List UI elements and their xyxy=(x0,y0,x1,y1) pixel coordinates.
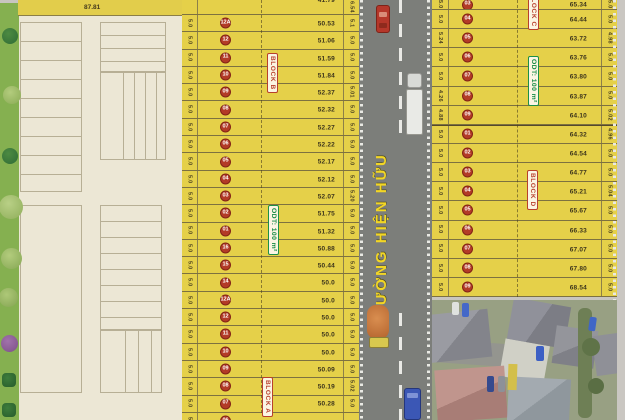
plot-width-right xyxy=(343,413,359,420)
plot-strip: 02 64.54 xyxy=(449,144,601,162)
plot-width-right: 5.0 xyxy=(343,223,359,239)
lot-number-badge: 10 xyxy=(220,70,231,81)
plot-strip: 12 50.0 xyxy=(198,309,343,325)
plot-length-label: 66.33 xyxy=(570,227,587,234)
plot-length-label: 51.75 xyxy=(318,211,335,218)
plot-width-left: 5.0 xyxy=(182,240,198,256)
plot-strip: 06 63.76 xyxy=(449,48,601,66)
road-name-label: ĐƯỜNG HIỆN HỮU xyxy=(373,138,390,318)
plot-width-right: 5.0 xyxy=(343,344,359,360)
plot-width-right: 5.0 xyxy=(343,50,359,66)
plot-width-right: 5.0 xyxy=(343,119,359,135)
plot-width-right: 5.0 xyxy=(343,274,359,290)
plot-length-label: 50.19 xyxy=(318,384,335,391)
plot-width-left: 5.0 xyxy=(182,274,198,290)
road-edge-line xyxy=(360,0,363,420)
top-boundary-length: 87.81 xyxy=(84,4,100,11)
lot-number-badge: 09 xyxy=(220,87,231,98)
lot-number-badge: 04 xyxy=(220,173,231,184)
block-c-label: BLOCK C xyxy=(528,0,539,30)
lot-number-badge: 06 xyxy=(220,139,231,150)
plot-length-label: 50.44 xyxy=(318,263,335,270)
top-boundary-bar: 87.81 xyxy=(18,0,182,16)
plot-length-label: 67.07 xyxy=(570,246,587,253)
lot-number-badge: 01 xyxy=(220,225,231,236)
cadastral-block xyxy=(20,22,82,192)
plot-width-left: 5.0 xyxy=(182,84,198,100)
plot-strip: 41.79 xyxy=(198,0,343,14)
road-center-dash xyxy=(399,313,402,420)
tree-icon xyxy=(2,28,18,44)
bush-icon xyxy=(2,403,16,417)
plot-length-label: 52.22 xyxy=(318,142,335,149)
lot-number-badge: 08 xyxy=(462,262,473,273)
plot-width-left: 5.0 xyxy=(182,153,198,169)
plot-width-left: 5.0 xyxy=(432,48,449,66)
plot-width-left: 5.0 xyxy=(432,126,449,143)
plot-row: 4.88 09 64.10 5.02 xyxy=(432,106,617,125)
lot-number-badge: 07 xyxy=(220,398,231,409)
plot-width-right: 5.0 xyxy=(343,153,359,169)
plot-width-left: 5.0 xyxy=(182,171,198,187)
lot-number-badge: 14 xyxy=(220,277,231,288)
plot-strip: 15 50.44 xyxy=(198,257,343,273)
plot-width-left: 5.0 xyxy=(432,163,449,181)
plot-row: 41.79 6.54 xyxy=(182,0,359,15)
plot-width-right: 5.0 xyxy=(343,32,359,48)
plot-width-left: 5.0 xyxy=(432,240,449,258)
plot-width-left: 5.0 xyxy=(182,32,198,48)
plot-strip: 12A 50.0 xyxy=(198,292,343,308)
plot-row: 5.0 03 52.07 5.20 xyxy=(182,188,359,205)
plot-width-right: 5.0 xyxy=(343,240,359,256)
lot-number-badge: 09 xyxy=(220,364,231,375)
plot-width-right: 5.02 xyxy=(343,378,359,394)
plot-length-label: 65.34 xyxy=(570,1,587,8)
plot-row: 5.0 04 52.12 5.0 xyxy=(182,171,359,188)
plot-width-left: 5.0 xyxy=(432,144,449,162)
plot-width-right: 5.1 xyxy=(343,15,359,31)
plot-width-left: 5.0 xyxy=(182,344,198,360)
plot-strip: 04 64.44 xyxy=(449,10,601,28)
plot-length-label: 50.53 xyxy=(318,20,335,27)
subdivision-map: 87.81 41.79 6.54 5.0 12A 50.53 5.1 5.0 1… xyxy=(0,0,625,420)
plot-strip: 11 50.0 xyxy=(198,326,343,342)
lot-number-badge: 08 xyxy=(220,104,231,115)
plot-row: 5.0 12A 50.53 5.1 xyxy=(182,15,359,32)
lot-number-badge: 03 xyxy=(462,167,473,178)
cadastral-block xyxy=(20,205,82,393)
lot-number-badge: 03 xyxy=(220,191,231,202)
cadastral-block xyxy=(113,72,166,160)
plot-row: 5.0 04 64.44 5.0 xyxy=(432,10,617,29)
plot-row: 5.0 04 65.21 5.04 xyxy=(432,182,617,201)
plot-strip: 07 63.80 xyxy=(449,67,601,85)
plot-row: 5.0 05 52.17 5.0 xyxy=(182,153,359,170)
plot-width-right: 5.0 xyxy=(343,257,359,273)
road-edge-line xyxy=(427,0,430,420)
plot-width-right: 5.0 xyxy=(343,396,359,412)
plot-row: 5.0 03 64.77 5.0 xyxy=(432,163,617,182)
plot-row: 5.0 06 52.22 5.0 xyxy=(182,136,359,153)
plot-strip: 06 66.33 xyxy=(449,221,601,239)
tree-icon xyxy=(2,148,18,164)
lot-number-badge: 03 xyxy=(462,0,473,9)
plot-row: 5.0 08 52.32 5.0 xyxy=(182,101,359,118)
boundary-dotted-line xyxy=(613,0,616,300)
plot-row: 5.0 11 50.0 5.0 xyxy=(182,326,359,343)
photo-car xyxy=(588,317,597,332)
plot-row: 5.0 06 63.76 5.0 xyxy=(432,48,617,67)
plot-width-left: 4.26 xyxy=(432,87,449,105)
plot-row: 5.0 09 50.09 5.0 xyxy=(182,361,359,378)
photo-tree xyxy=(588,378,604,394)
paper-edge xyxy=(617,0,625,420)
white-truck-icon xyxy=(406,73,423,135)
depth-divider-right xyxy=(517,0,518,297)
tree-icon xyxy=(3,86,21,104)
cadastral-block xyxy=(100,205,162,330)
plot-strip: 05 52.17 xyxy=(198,153,343,169)
lot-number-badge: 09 xyxy=(462,282,473,293)
car-windshield xyxy=(379,12,387,17)
purple-tree-icon xyxy=(1,335,18,352)
plot-width-left: 5.0 xyxy=(182,136,198,152)
truck-cab xyxy=(407,73,422,88)
photo-pink-roof xyxy=(434,366,507,420)
block-a-label: BLOCK A xyxy=(262,377,273,417)
lot-number-badge: 12A xyxy=(220,18,231,29)
tree-icon xyxy=(0,288,18,307)
plot-length-label: 50.0 xyxy=(322,297,335,304)
plot-width-left: 5.0 xyxy=(432,201,449,219)
plot-length-label: 51.06 xyxy=(318,38,335,45)
plot-strip: 03 64.77 xyxy=(449,163,601,181)
plot-width-right: 5.0 xyxy=(343,361,359,377)
lot-number-badge: 08 xyxy=(220,381,231,392)
plot-width-left: 5.0 xyxy=(182,50,198,66)
plot-row: 4.26 08 63.87 5.0 xyxy=(432,87,617,106)
plot-length-label: 50.88 xyxy=(318,245,335,252)
plot-width-left: 4.88 xyxy=(432,106,449,124)
photo-car xyxy=(452,302,459,315)
photo-car xyxy=(487,376,494,392)
plot-width-left: 5.0 xyxy=(182,396,198,412)
plot-width-left: 5.0 xyxy=(182,188,198,204)
plot-width-left: 5.24 xyxy=(432,29,449,47)
photo-roof xyxy=(432,309,492,363)
plot-strip: 03 65.34 xyxy=(449,0,601,9)
plot-width-left: 5.0 xyxy=(432,182,449,200)
plot-length-label: 51.59 xyxy=(318,55,335,62)
plot-width-left: 5.0 xyxy=(182,205,198,221)
plot-width-left xyxy=(182,0,198,14)
tree-icon xyxy=(0,195,23,219)
plot-row: 5.0 12A 50.0 5.0 xyxy=(182,292,359,309)
plot-row: 5.24 05 63.72 4.98 xyxy=(432,29,617,48)
lot-number-badge: 02 xyxy=(220,208,231,219)
block-b-label: BLOCK B xyxy=(267,53,278,93)
lot-number-badge: 07 xyxy=(462,243,473,254)
plot-strip: 12A 50.53 xyxy=(198,15,343,31)
plot-length-label: 41.79 xyxy=(318,0,335,4)
lot-number-badge: 04 xyxy=(462,14,473,25)
plot-length-label: 52.32 xyxy=(318,107,335,114)
lot-number-badge: 12 xyxy=(220,35,231,46)
plot-row: 5.0 07 63.80 5.0 xyxy=(432,67,617,86)
plot-rows-right: 5.0 03 65.34 5.0 5.0 04 64.44 5.0 5.24 0… xyxy=(432,0,617,297)
car-rear-window xyxy=(379,23,387,28)
odt-left-label: ODT: 100 m² xyxy=(268,205,279,255)
plot-width-left: 5.0 xyxy=(182,67,198,83)
plot-length-label: 64.32 xyxy=(570,132,587,139)
plot-row: 5.0 05 65.67 5.0 xyxy=(432,201,617,220)
lot-number-badge: 07 xyxy=(220,121,231,132)
plot-length-label: 52.12 xyxy=(318,176,335,183)
plot-width-left: 5.0 xyxy=(182,15,198,31)
plot-width-left: 5.0 xyxy=(182,361,198,377)
plot-length-label: 65.67 xyxy=(570,208,587,215)
plot-row: 5.0 15 50.44 5.0 xyxy=(182,257,359,274)
plot-strip: 10 50.0 xyxy=(198,344,343,360)
plot-strip: 07 52.27 xyxy=(198,119,343,135)
plot-row: 5.0 12 50.0 5.0 xyxy=(182,309,359,326)
plot-length-label: 68.54 xyxy=(570,284,587,291)
plot-row: 5.0 01 64.32 4.96 xyxy=(432,125,617,144)
photo-car xyxy=(498,376,505,392)
plot-strip: 08 52.32 xyxy=(198,101,343,117)
plot-row: 5.0 08 67.80 5.0 xyxy=(432,259,617,278)
tree-icon xyxy=(1,248,22,269)
mixer-base xyxy=(369,337,389,348)
plot-strip: 05 63.72 xyxy=(449,29,601,47)
plot-width-left: 5.0 xyxy=(432,221,449,239)
lot-number-badge: 08 xyxy=(462,90,473,101)
plot-length-label: 64.54 xyxy=(570,150,587,157)
road-center-dash xyxy=(399,0,402,138)
lot-number-badge: 09 xyxy=(462,109,473,120)
lot-number-badge: 11 xyxy=(220,52,231,63)
plot-width-left: 5.0 xyxy=(182,101,198,117)
plot-strip: 09 50.09 xyxy=(198,361,343,377)
plot-row: 5.0 12 51.06 5.0 xyxy=(182,32,359,49)
lot-number-badge: 15 xyxy=(220,260,231,271)
plot-width-left: 5.0 xyxy=(432,67,449,85)
plot-length-label: 50.0 xyxy=(322,349,335,356)
depth-divider-left xyxy=(261,0,262,413)
lot-number-badge: 12A xyxy=(220,294,231,305)
plot-length-label: 63.87 xyxy=(570,93,587,100)
plot-width-right: 5.0 xyxy=(343,326,359,342)
plot-length-label: 51.32 xyxy=(318,228,335,235)
plot-strip: 14 50.0 xyxy=(198,274,343,290)
truck-windshield xyxy=(407,393,418,398)
plot-width-left: 5.0 xyxy=(182,413,198,420)
photo-tree xyxy=(582,338,600,356)
plot-width-left: 5.0 xyxy=(182,119,198,135)
plot-length-label: 63.72 xyxy=(570,36,587,43)
plot-width-left: 5.0 xyxy=(432,10,449,28)
greenery-strip xyxy=(0,3,19,420)
plot-strip: 04 65.21 xyxy=(449,182,601,200)
plot-row: 5.0 06 66.33 5.0 xyxy=(432,221,617,240)
plot-row: 5.0 07 67.07 5.0 xyxy=(432,240,617,259)
plot-width-right: 5.0 xyxy=(343,292,359,308)
plot-width-right: 6.54 xyxy=(343,0,359,14)
plot-strip: 01 64.32 xyxy=(449,126,601,143)
plot-width-right: 5.0 xyxy=(343,101,359,117)
aerial-photo xyxy=(432,300,617,420)
cadastral-block xyxy=(100,22,166,72)
photo-car xyxy=(536,346,544,361)
plot-width-right: 5.0 xyxy=(343,205,359,221)
lot-number-badge: 05 xyxy=(462,33,473,44)
photo-car xyxy=(462,303,469,317)
plot-strip: 12 51.06 xyxy=(198,32,343,48)
plot-strip: 09 64.10 xyxy=(449,106,601,124)
lot-number-badge: 16 xyxy=(220,243,231,254)
plot-length-label: 64.10 xyxy=(570,112,587,119)
plot-width-left: 5.0 xyxy=(182,378,198,394)
plot-width-left: 5.0 xyxy=(432,0,449,9)
lot-number-badge: 12 xyxy=(220,312,231,323)
plot-strip: 09 68.54 xyxy=(449,278,601,296)
plot-length-label: 50.0 xyxy=(322,280,335,287)
block-d-label: BLOCK D xyxy=(527,170,538,210)
plot-width-right: 5.0 xyxy=(343,136,359,152)
photo-yellow-structure xyxy=(508,364,518,390)
plot-width-left: 5.0 xyxy=(182,223,198,239)
lot-number-badge: 05 xyxy=(220,156,231,167)
plot-length-label: 52.27 xyxy=(318,124,335,131)
lot-number-badge: 06 xyxy=(220,415,231,420)
lot-number-badge: 10 xyxy=(220,346,231,357)
odt-right-label: ODT: 100 m² xyxy=(528,56,539,106)
plot-row: 5.0 03 65.34 5.0 xyxy=(432,0,617,10)
plot-strip: 05 65.67 xyxy=(449,201,601,219)
plot-length-label: 52.17 xyxy=(318,159,335,166)
plot-width-left: 5.0 xyxy=(182,257,198,273)
road: ĐƯỜNG HIỆN HỮU xyxy=(359,0,432,420)
plot-column-right: 5.0 03 65.34 5.0 5.0 04 64.44 5.0 5.24 0… xyxy=(432,0,617,298)
plot-width-right: 5.0 xyxy=(343,171,359,187)
lot-number-badge: 04 xyxy=(462,186,473,197)
plot-row: 5.0 07 52.27 5.0 xyxy=(182,119,359,136)
plot-length-label: 63.80 xyxy=(570,74,587,81)
cadastral-area xyxy=(18,0,182,420)
plot-length-label: 51.84 xyxy=(318,72,335,79)
plot-strip: 04 52.12 xyxy=(198,171,343,187)
plot-width-left: 5.0 xyxy=(432,278,449,296)
plot-length-label: 52.37 xyxy=(318,90,335,97)
plot-width-left: 5.0 xyxy=(182,292,198,308)
plot-length-label: 50.0 xyxy=(322,332,335,339)
plot-width-left: 5.0 xyxy=(432,259,449,277)
plot-width-right: 5.0 xyxy=(343,309,359,325)
plot-row: 5.0 10 50.0 5.0 xyxy=(182,344,359,361)
truck-box xyxy=(406,89,423,135)
plot-width-left: 5.0 xyxy=(182,326,198,342)
plot-length-label: 64.44 xyxy=(570,16,587,23)
plot-length-label: 50.09 xyxy=(318,366,335,373)
mixer-truck-icon xyxy=(367,305,389,339)
plot-row: 5.0 09 68.54 5.0 xyxy=(432,278,617,297)
plot-width-right: 5.20 xyxy=(343,188,359,204)
lot-number-badge: 07 xyxy=(462,71,473,82)
plot-width-left: 5.0 xyxy=(182,309,198,325)
lot-number-badge: 02 xyxy=(462,148,473,159)
cadastral-block xyxy=(113,330,162,393)
plot-width-right: 5.0 xyxy=(343,67,359,83)
plot-row: 5.0 14 50.0 5.0 xyxy=(182,274,359,291)
plot-strip: 08 67.80 xyxy=(449,259,601,277)
lot-number-badge: 06 xyxy=(462,224,473,235)
plot-length-label: 50.28 xyxy=(318,401,335,408)
plot-length-label: 64.77 xyxy=(570,170,587,177)
plot-row: 5.0 02 64.54 5.0 xyxy=(432,144,617,163)
plot-length-label: 50.0 xyxy=(322,315,335,322)
lot-number-badge: 11 xyxy=(220,329,231,340)
blue-truck-icon xyxy=(404,388,421,420)
plot-strip: 07 67.07 xyxy=(449,240,601,258)
plot-length-label: 65.21 xyxy=(570,189,587,196)
lot-number-badge: 05 xyxy=(462,205,473,216)
plot-length-label: 52.07 xyxy=(318,193,335,200)
plot-strip: 08 63.87 xyxy=(449,87,601,105)
plot-length-label: 67.80 xyxy=(570,265,587,272)
lot-number-badge: 06 xyxy=(462,52,473,63)
plot-length-label: 63.76 xyxy=(570,55,587,62)
plot-width-right: 5.01 xyxy=(343,84,359,100)
lot-number-badge: 01 xyxy=(462,129,473,140)
plot-strip: 06 52.22 xyxy=(198,136,343,152)
plot-strip: 03 52.07 xyxy=(198,188,343,204)
bush-icon xyxy=(2,373,16,387)
red-car-icon xyxy=(376,5,390,33)
